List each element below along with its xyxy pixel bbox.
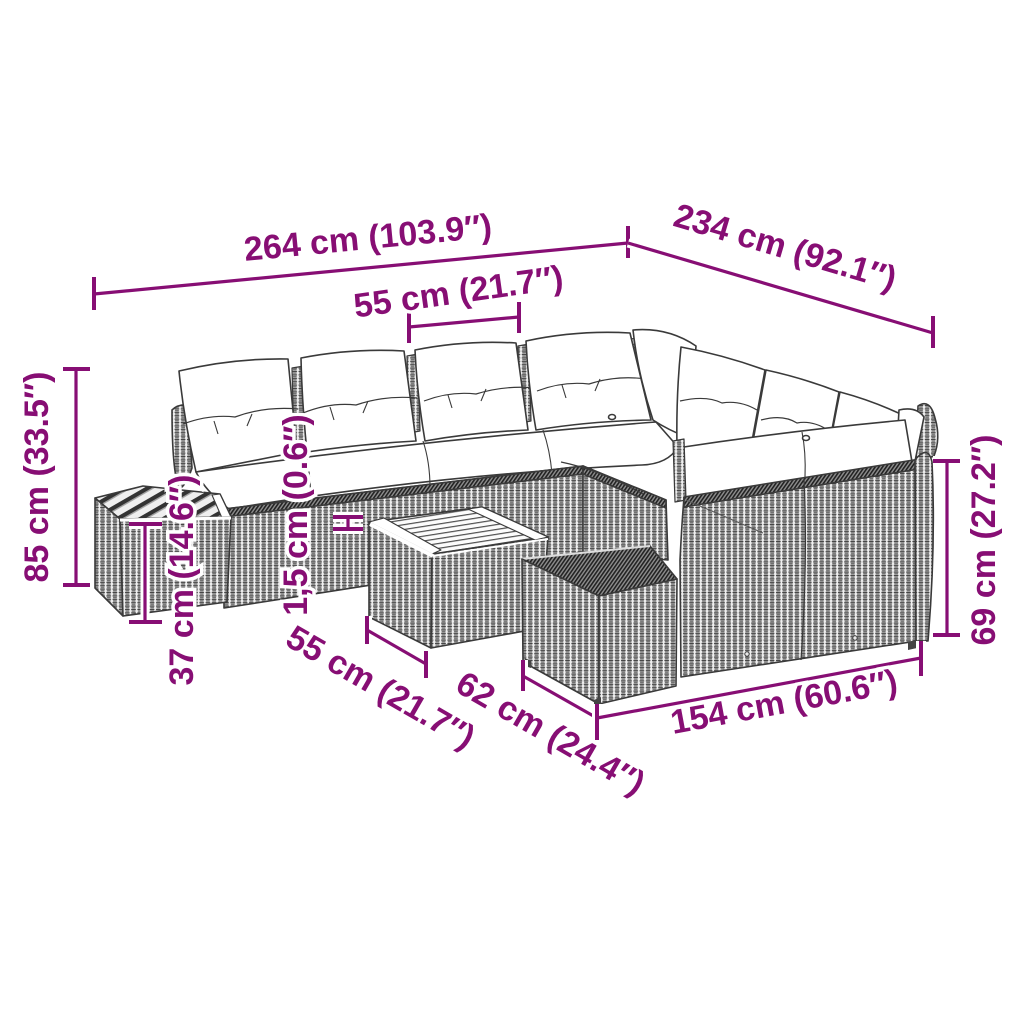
svg-text:69 cm (27.2″): 69 cm (27.2″)	[965, 435, 1003, 646]
svg-text:1,5 cm (0.6″): 1,5 cm (0.6″)	[277, 414, 315, 616]
svg-text:85 cm (33.5″): 85 cm (33.5″)	[18, 372, 56, 583]
svg-text:37 cm (14.6″): 37 cm (14.6″)	[163, 475, 201, 686]
